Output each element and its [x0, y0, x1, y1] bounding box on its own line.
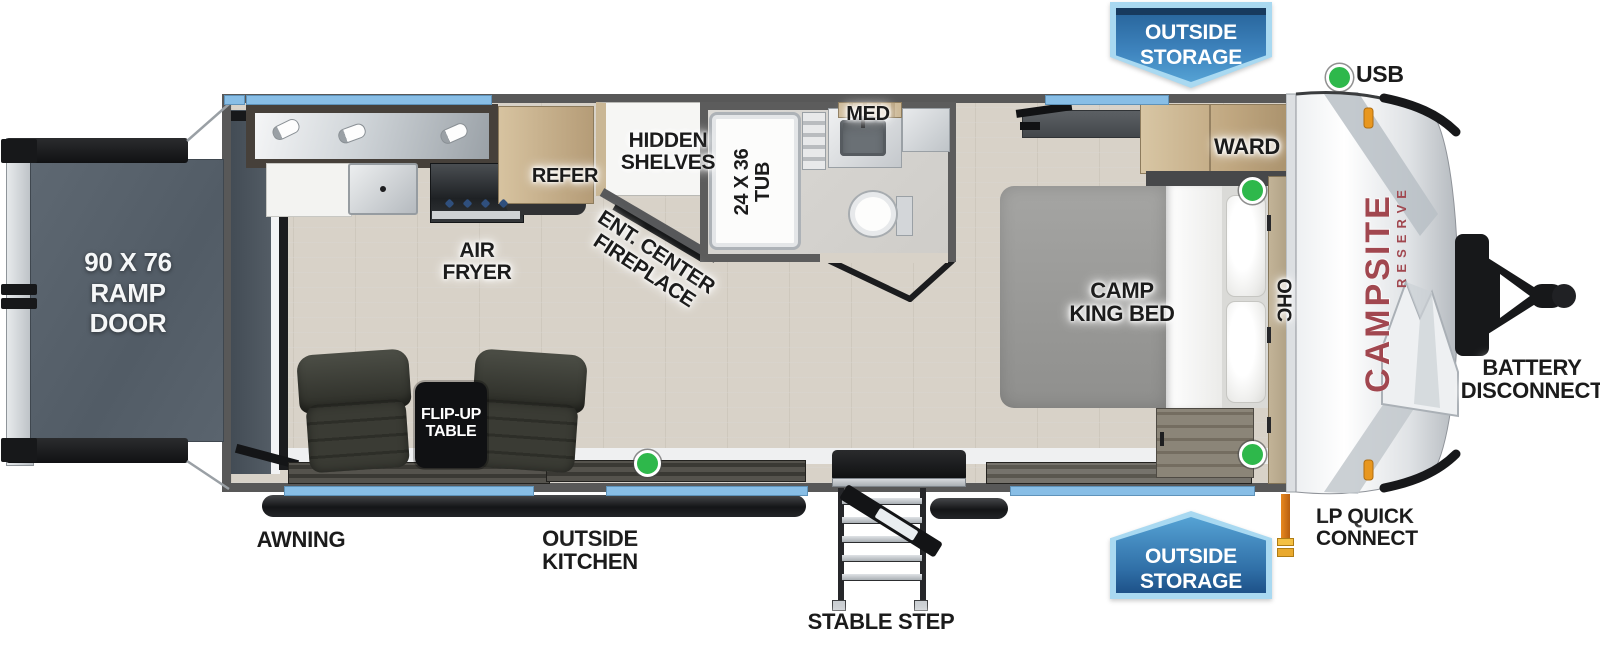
- brand-reserve: RESERVE: [1394, 176, 1410, 296]
- toilet: [848, 190, 898, 238]
- camp-king-bed-label: CAMPKING BED: [1069, 279, 1174, 325]
- shelf-bracket-icon: [1020, 122, 1040, 130]
- sink-drain-icon: [380, 186, 386, 192]
- cap-trim-top: [1384, 98, 1456, 132]
- ramp-hinge-icon: [1, 284, 37, 295]
- clearance-light-icon: [1364, 460, 1373, 480]
- bedroom-dresser: [1156, 408, 1254, 478]
- badge-text: OUTSIDESTORAGE: [1116, 517, 1266, 593]
- lp-fitting-icon: [1277, 548, 1294, 557]
- pillow: [1226, 301, 1266, 403]
- step-rail: [838, 488, 844, 602]
- lp-quick-connect-label: LP QUICKCONNECT: [1316, 506, 1418, 550]
- usb-indicator-icon: [1239, 441, 1266, 468]
- air-fryer-label: AIRFRYER: [443, 240, 512, 284]
- hitch-tongue: [1530, 284, 1564, 308]
- window-bedroom-bottom: [1010, 486, 1255, 496]
- recliner-chair: [296, 348, 416, 474]
- ohc-label: OHC: [1273, 278, 1294, 322]
- hidden-shelves-label: HIDDENSHELVES: [621, 130, 715, 174]
- hitch-receiver: [1455, 234, 1489, 356]
- stable-step-label: STABLE STEP: [808, 610, 955, 633]
- hitch-coupler-icon: [1552, 284, 1576, 308]
- bathroom-door-opening: [820, 253, 948, 263]
- flip-up-table-label: FLIP-UPTABLE: [421, 407, 481, 441]
- ward-label: WARD: [1214, 135, 1280, 158]
- cabinet-handle-icon: [1267, 417, 1271, 433]
- outside-storage-badge-bottom: OUTSIDESTORAGE: [1110, 511, 1272, 599]
- window-rear-top: [224, 95, 245, 105]
- outside-kitchen-label: OUTSIDEKITCHEN: [542, 527, 638, 573]
- kitchen-counter: [266, 163, 352, 217]
- cabinet-handle-icon: [1267, 215, 1271, 231]
- tub-label: 24 X 36TUB: [732, 149, 774, 216]
- mountain-shading: [1406, 282, 1440, 408]
- refer-label: REFER: [532, 166, 598, 187]
- usb-label: USB: [1356, 62, 1404, 86]
- step-rung: [842, 574, 922, 580]
- outside-storage-badge-top: OUTSIDESTORAGE: [1110, 2, 1272, 88]
- usb-indicator-icon: [634, 450, 661, 477]
- floorplan-canvas: 90 X 76 RAMP DOOR AIRFRYER REFER HIDDENS…: [0, 0, 1600, 648]
- ramp-hinge-icon: [1, 139, 37, 163]
- ramp-door-label: 90 X 76 RAMP DOOR: [84, 247, 172, 339]
- lp-fitting-icon: [1277, 538, 1294, 546]
- chair-seat: [474, 399, 578, 474]
- ramp-hinge-icon: [1, 298, 37, 309]
- toilet-tank: [896, 196, 913, 236]
- hitch-a-frame-cutout: [1500, 274, 1530, 318]
- window-bedroom-top: [1045, 95, 1169, 105]
- usb-legend-dot-icon: [1326, 64, 1353, 91]
- storage-bench: [546, 460, 806, 482]
- brand-campsite: CAMPSITE: [1359, 173, 1399, 413]
- wardrobe-divider: [1209, 105, 1211, 173]
- linen-shelves: [802, 112, 826, 170]
- hitch-a-frame: [1488, 258, 1548, 334]
- badge-text: OUTSIDESTORAGE: [1116, 8, 1266, 82]
- awning-tube: [262, 495, 806, 517]
- cabinet-handle-icon: [1160, 432, 1164, 446]
- step-rung: [842, 555, 922, 561]
- clearance-light-icon: [1364, 108, 1373, 128]
- cabinet-handle-icon: [1267, 327, 1271, 343]
- ramp-hinge-icon: [1, 438, 37, 462]
- usb-indicator-icon: [1239, 177, 1266, 204]
- window-kitchen-top: [246, 95, 492, 105]
- awning-label: AWNING: [257, 528, 346, 551]
- cap-trim-bottom: [1384, 454, 1456, 488]
- window-kitchen-bottom: [606, 486, 808, 496]
- chair-seat: [305, 399, 409, 474]
- bathroom-counter: [902, 108, 950, 152]
- lp-quick-connect-pipe: [1281, 494, 1290, 540]
- overhead-cabinet-ohc: [1268, 176, 1298, 484]
- refrigerator: [498, 106, 594, 204]
- window-lounge-bottom: [284, 486, 534, 496]
- battery-disconnect-label: BATTERYDISCONNECT: [1461, 356, 1600, 402]
- med-label: MED: [846, 104, 890, 125]
- cap-top-edge: [1296, 93, 1408, 107]
- pillow: [1226, 195, 1266, 297]
- awning-tube: [930, 498, 1008, 519]
- cooktop-front: [432, 211, 520, 219]
- front-cap: [1286, 86, 1600, 506]
